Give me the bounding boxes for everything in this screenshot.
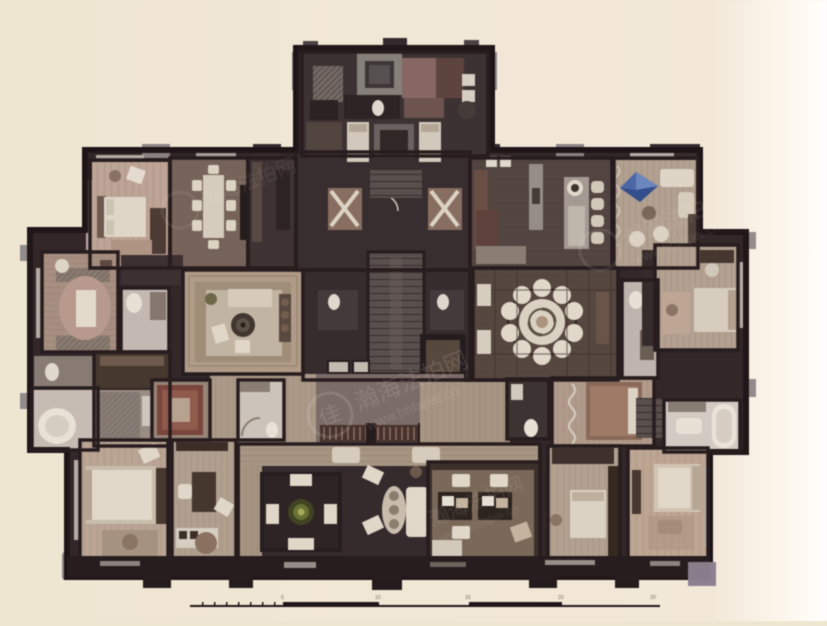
svg-text:15: 15 (465, 595, 471, 601)
svg-text:10: 10 (375, 595, 381, 601)
svg-text:20: 20 (558, 595, 564, 601)
svg-text:5: 5 (281, 595, 284, 601)
svg-text:25': 25' (650, 595, 657, 601)
